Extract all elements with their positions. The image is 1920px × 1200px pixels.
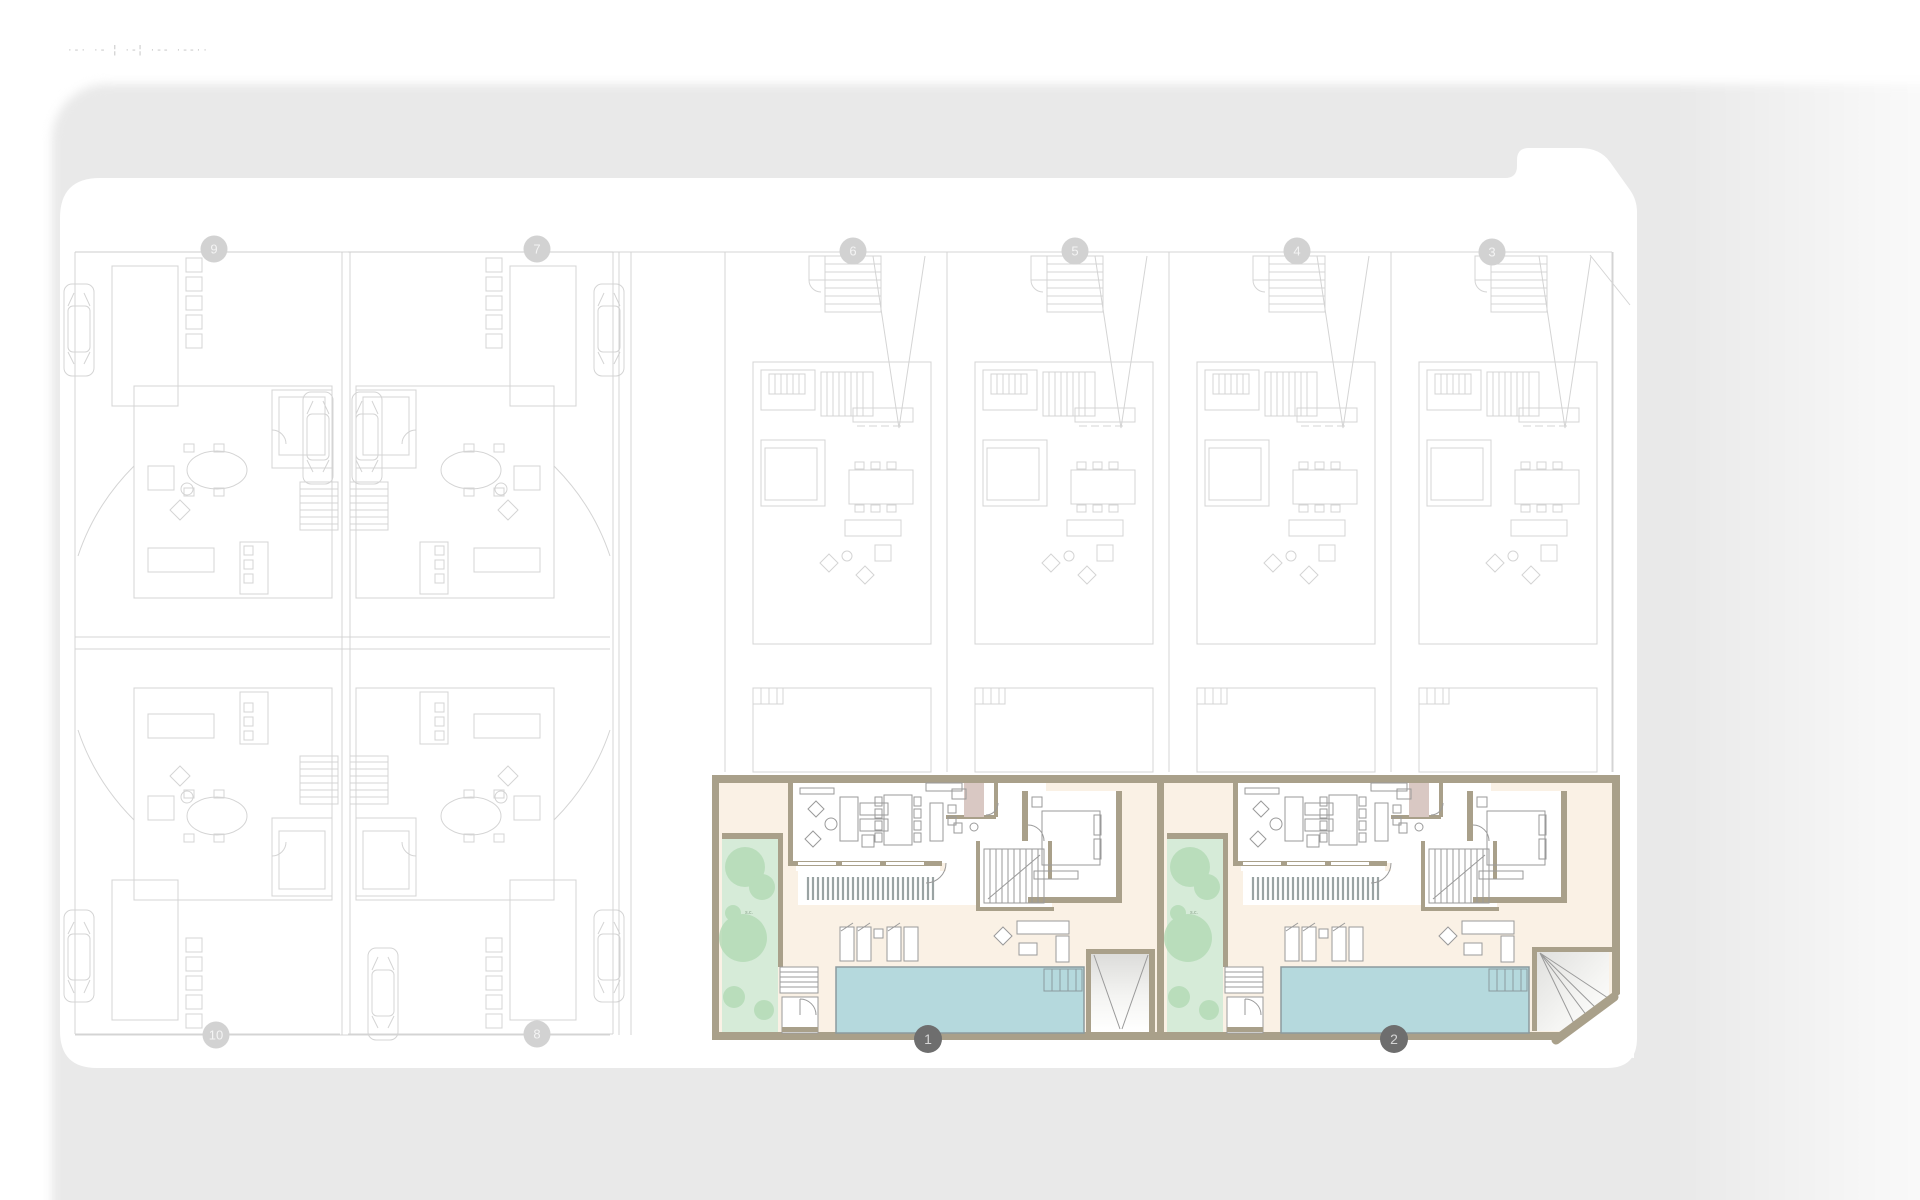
garden-label-layer: s.c.s.c.	[0, 0, 1920, 1200]
garden-label-villa-2: s.c.	[1190, 910, 1198, 916]
site-plan-page: ·-· ·- ¦ ·-¦ ·-- ·--··	[0, 0, 1920, 1200]
garden-label-villa-1: s.c.	[745, 910, 753, 916]
